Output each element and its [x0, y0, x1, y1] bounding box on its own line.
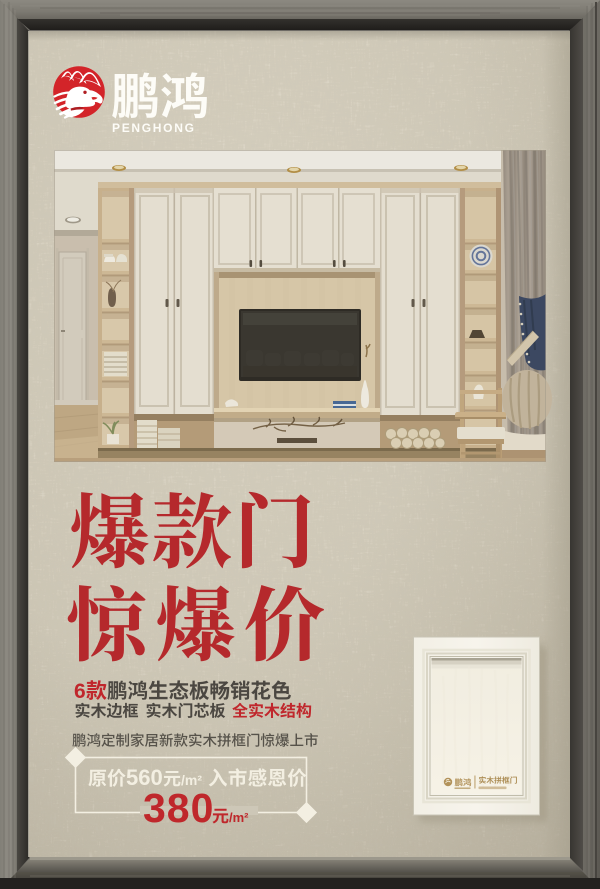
svg-text:6: 6 — [74, 680, 86, 703]
svg-text:PENGHONG: PENGHONG — [112, 121, 196, 135]
svg-text:/m²: /m² — [229, 810, 249, 825]
svg-text:380: 380 — [143, 785, 214, 831]
